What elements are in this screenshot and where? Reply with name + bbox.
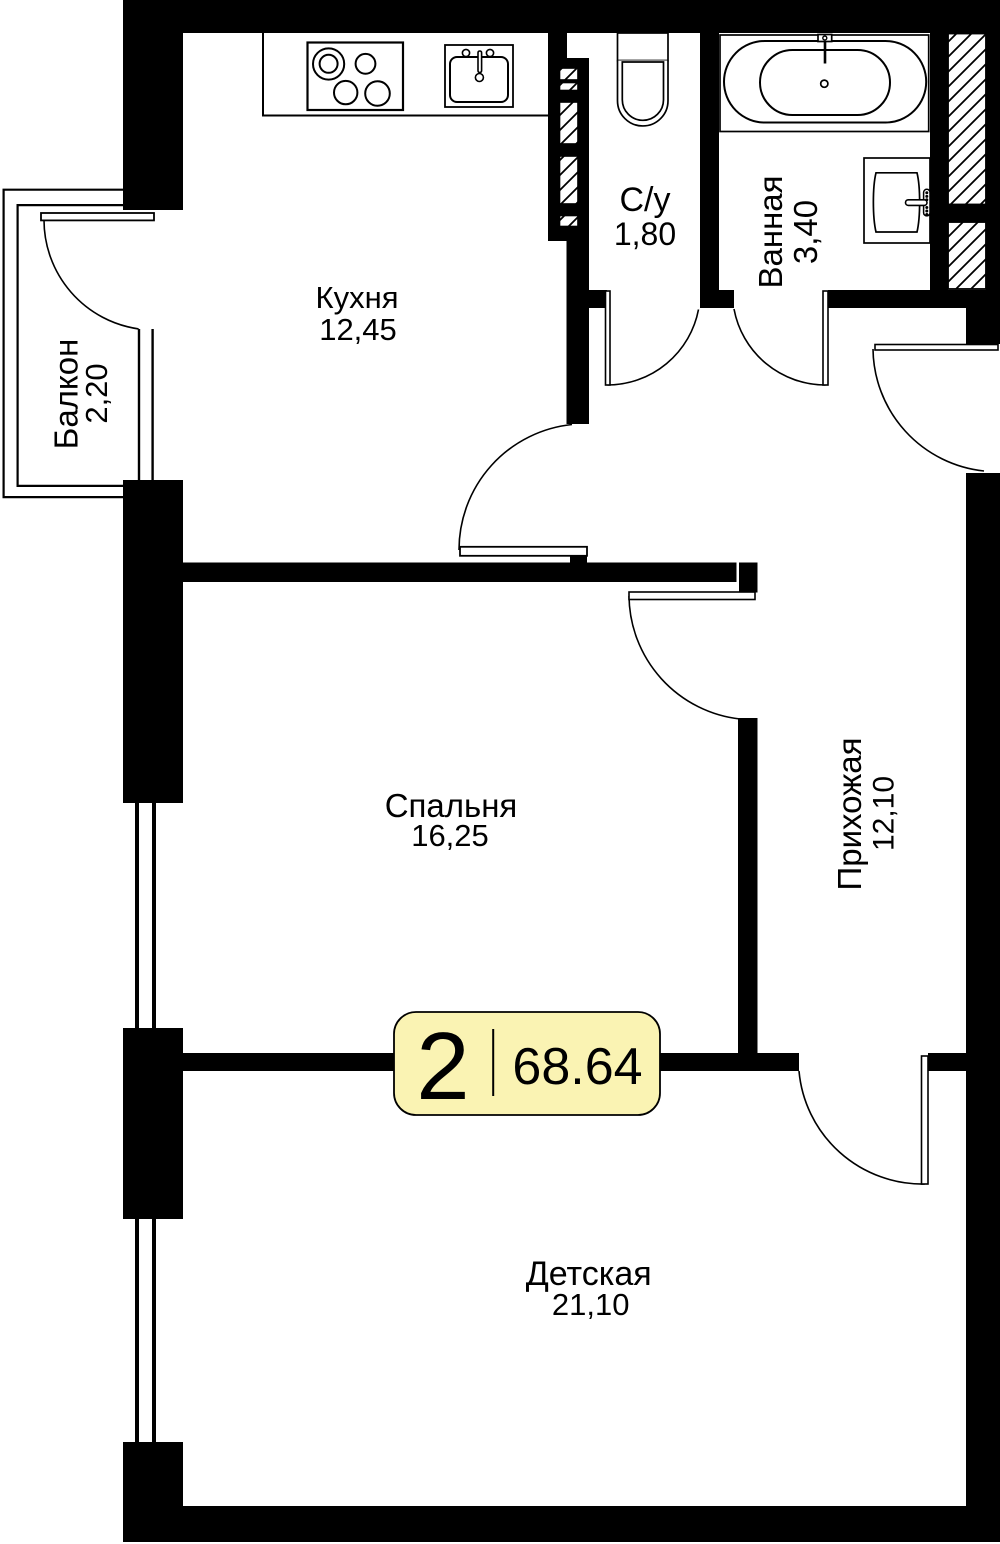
- svg-text:2,20: 2,20: [79, 363, 114, 423]
- svg-text:Кухня: Кухня: [316, 280, 399, 315]
- svg-text:1,80: 1,80: [614, 216, 676, 252]
- svg-text:2: 2: [416, 1013, 469, 1120]
- svg-text:С/у: С/у: [620, 181, 671, 219]
- svg-text:12,10: 12,10: [868, 776, 901, 851]
- svg-text:12,45: 12,45: [319, 312, 397, 347]
- svg-text:68.64: 68.64: [512, 1038, 642, 1096]
- svg-text:16,25: 16,25: [411, 818, 489, 853]
- svg-text:Прихожая: Прихожая: [831, 738, 868, 891]
- svg-text:Ванная: Ванная: [752, 175, 789, 288]
- svg-text:3,40: 3,40: [787, 200, 824, 264]
- svg-text:21,10: 21,10: [552, 1287, 630, 1322]
